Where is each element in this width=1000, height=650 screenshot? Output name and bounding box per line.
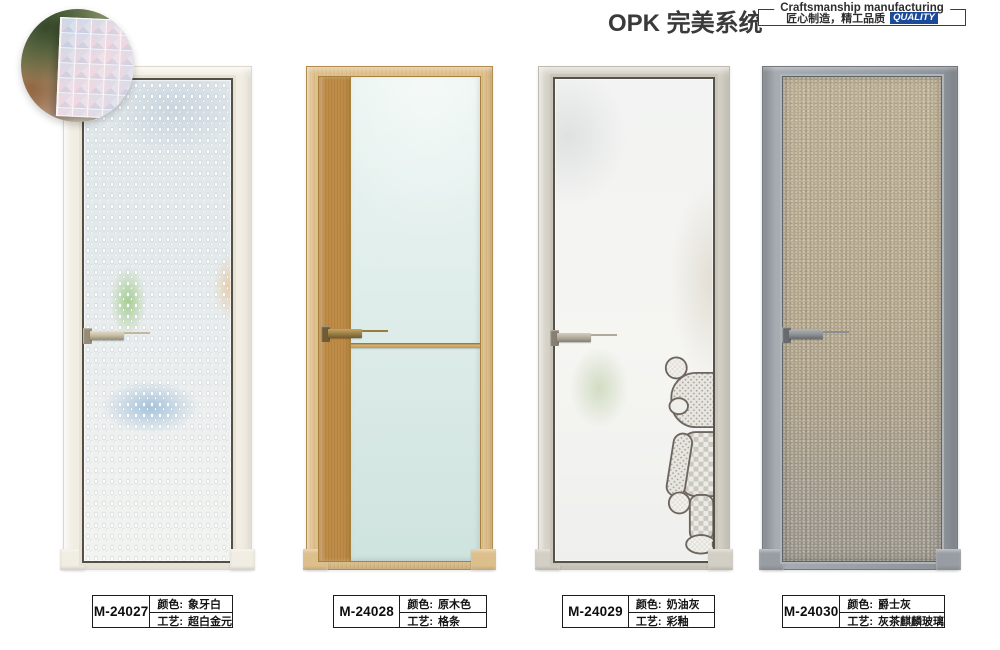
color-row: 颜色: 奶油灰: [629, 596, 714, 612]
color-row: 颜色: 象牙白: [150, 596, 232, 612]
product-label-m24029: M-24029 颜色: 奶油灰 工艺: 彩釉: [562, 595, 715, 628]
handle-extension: [124, 332, 150, 334]
model-number: M-24030: [783, 596, 840, 627]
handle-bar: [557, 333, 591, 342]
product-label-m24027: M-24027 颜色: 象牙白 工艺: 超白金元: [92, 595, 233, 628]
certification-box: Craftsmanship manufacturing 匠心制造，精工品质 QU…: [758, 9, 966, 26]
door-m24028-handle: [321, 326, 391, 344]
color-value: 原木色: [438, 596, 471, 612]
door-m24030-kirin-glass: [782, 76, 942, 562]
handle-extension: [362, 330, 388, 332]
wood-stile: [319, 77, 351, 561]
handle-extension: [823, 331, 849, 333]
handle-extension: [591, 334, 617, 336]
handle-bar: [90, 331, 124, 340]
craft-row: 工艺: 灰茶麒麟玻璃: [840, 612, 944, 629]
page-title: OPK 完美系统: [608, 3, 763, 38]
product-details: 颜色: 爵士灰 工艺: 灰茶麒麟玻璃: [840, 596, 944, 627]
quality-badge: QUALITY: [890, 12, 938, 24]
craft-prefix: 工艺:: [407, 613, 433, 629]
glass-detail-inset-photo: [21, 9, 134, 122]
color-value: 奶油灰: [667, 596, 700, 612]
model-number: M-24028: [334, 596, 400, 627]
craft-value: 彩釉: [667, 613, 689, 629]
cert-chinese-text: 匠心制造，精工品质: [786, 10, 885, 26]
product-label-m24028: M-24028 颜色: 原木色 工艺: 格条: [333, 595, 487, 628]
prism-glass-sample: [56, 17, 134, 120]
door-m24029: [538, 66, 730, 570]
craft-value: 超白金元: [188, 613, 232, 629]
door-m24028-inner-panel: [318, 76, 481, 562]
cert-line-chinese: 匠心制造，精工品质 QUALITY: [759, 11, 965, 25]
bearbrick-graphic: [659, 353, 715, 558]
craft-value: 格条: [438, 613, 460, 629]
door-m24030-handle: [782, 327, 852, 345]
color-prefix: 颜色:: [636, 596, 662, 612]
craft-row: 工艺: 超白金元: [150, 612, 232, 629]
door-m24027-textured-glass: [82, 78, 233, 563]
craft-row: 工艺: 彩釉: [629, 612, 714, 629]
color-prefix: 颜色:: [157, 596, 183, 612]
color-prefix: 颜色:: [847, 596, 873, 612]
handle-bar: [789, 330, 823, 339]
model-number: M-24029: [563, 596, 629, 627]
product-details: 颜色: 奶油灰 工艺: 彩釉: [629, 596, 714, 627]
handle-bar: [328, 329, 362, 338]
craft-value: 灰茶麒麟玻璃: [878, 613, 944, 629]
door-m24029-frosted-glass: [553, 77, 715, 563]
product-details: 颜色: 原木色 工艺: 格条: [400, 596, 486, 627]
craft-prefix: 工艺:: [636, 613, 662, 629]
craft-row: 工艺: 格条: [400, 612, 486, 629]
door-m24029-handle: [550, 330, 620, 348]
color-row: 颜色: 爵士灰: [840, 596, 944, 612]
door-m24028-mint-glass: [351, 77, 480, 561]
product-label-m24030: M-24030 颜色: 爵士灰 工艺: 灰茶麒麟玻璃: [782, 595, 945, 628]
door-m24027-handle: [83, 328, 153, 346]
door-m24027: [63, 66, 252, 570]
craft-prefix: 工艺:: [847, 613, 873, 629]
craft-prefix: 工艺:: [157, 613, 183, 629]
catalog-page: OPK 完美系统 Craftsmanship manufacturing 匠心制…: [0, 0, 1000, 650]
door-m24030: [762, 66, 958, 570]
color-value: 象牙白: [188, 596, 221, 612]
door-m24028: [306, 66, 493, 570]
color-prefix: 颜色:: [407, 596, 433, 612]
color-value: 爵士灰: [878, 596, 911, 612]
color-row: 颜色: 原木色: [400, 596, 486, 612]
model-number: M-24027: [93, 596, 150, 627]
product-details: 颜色: 象牙白 工艺: 超白金元: [150, 596, 232, 627]
